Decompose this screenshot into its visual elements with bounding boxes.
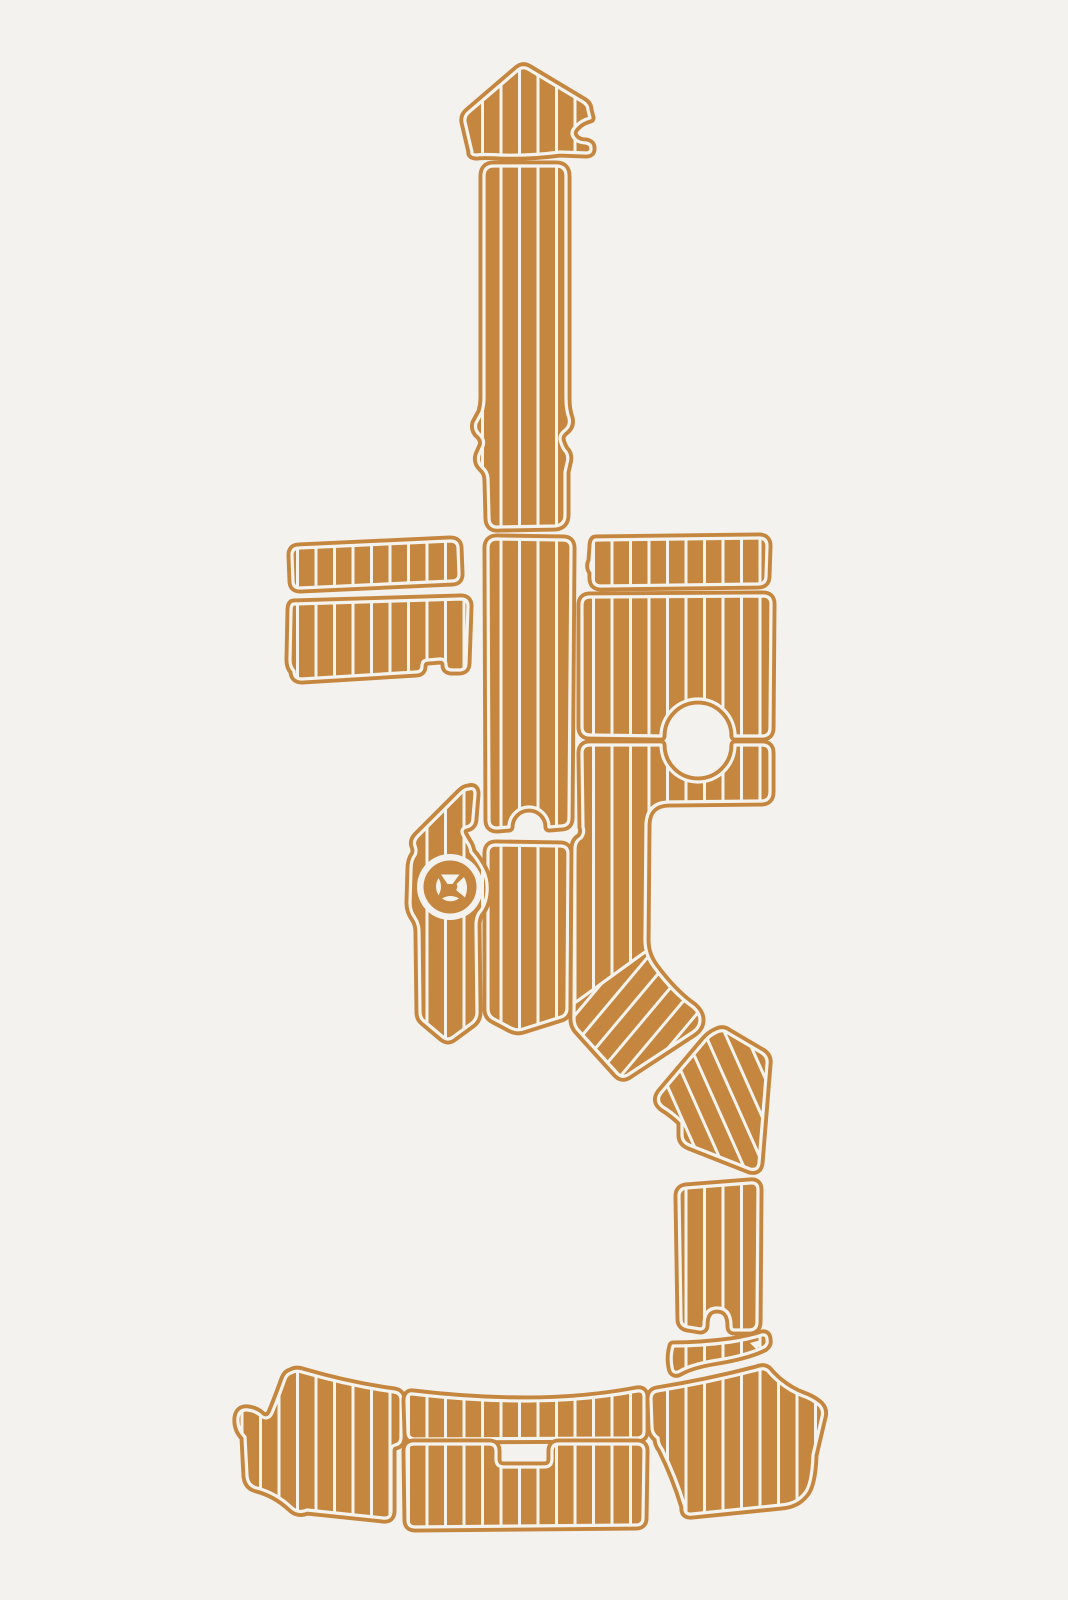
deck-pad-layout — [0, 0, 1068, 1600]
product-image-stage — [0, 0, 1068, 1600]
port-side-pad — [290, 599, 468, 679]
cockpit-center-lower — [488, 845, 568, 1030]
logo-disc — [426, 863, 475, 912]
cockpit-center-upper — [488, 539, 571, 828]
starboard-gunwale-strip — [591, 538, 767, 586]
swim-platform-starboard — [651, 1369, 823, 1514]
transom-step-pad — [679, 1183, 758, 1330]
swim-platform-center — [407, 1391, 644, 1439]
bow-walkway — [476, 166, 570, 527]
port-gunwale-strip — [292, 541, 459, 588]
